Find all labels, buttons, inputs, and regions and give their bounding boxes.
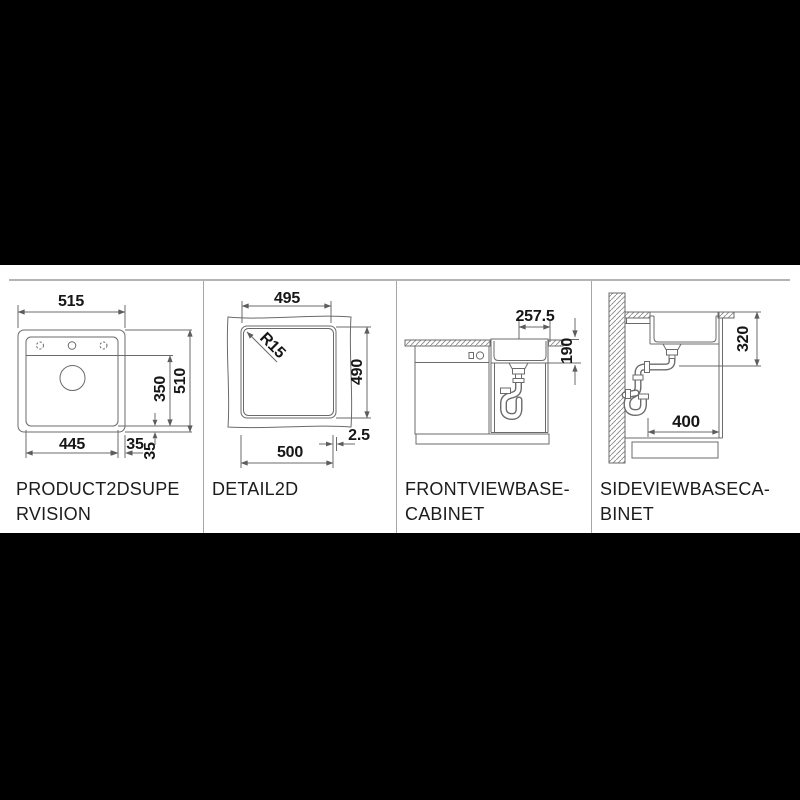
panel-frontviewbasecabinet: 257.5 190 FRONTVIEWBASE- CABINET <box>396 265 591 533</box>
panel-label-line1: PRODUCT2DSUPE <box>16 477 180 502</box>
panel-sideviewbasecabinet: 320 400 SIDEVIEWBASECA- BINET <box>591 265 800 533</box>
panel-label: SIDEVIEWBASECA- BINET <box>600 477 770 527</box>
dim-installation-depth: 320 <box>735 326 753 352</box>
panel-label-line2: RVISION <box>16 502 180 527</box>
front-view-cabinet-drawing <box>396 285 591 480</box>
panel-detail2d: 495 R15 490 2.5 500 DETAIL2D <box>203 265 396 533</box>
dim-inner-height: 490 <box>349 359 367 385</box>
panel-label: DETAIL2D <box>212 477 298 502</box>
panel-label-line1: SIDEVIEWBASECA- <box>600 477 770 502</box>
panel-label-line2: BINET <box>600 502 770 527</box>
panel-label: FRONTVIEWBASE- CABINET <box>405 477 570 527</box>
dim-bowl-depth-front: 350 <box>152 376 170 402</box>
dim-offset-bottom: 35 <box>142 442 160 459</box>
side-view-cabinet-drawing <box>591 285 800 480</box>
dim-bowl-depth: 190 <box>559 338 577 364</box>
panel-label-line2: CABINET <box>405 502 570 527</box>
dim-overall-width: 515 <box>58 293 84 311</box>
panel-label: PRODUCT2DSUPE RVISION <box>16 477 180 527</box>
dim-drain-offset: 257.5 <box>515 308 554 326</box>
dim-overall-depth: 510 <box>172 368 190 394</box>
dim-clearance: 400 <box>672 412 700 432</box>
panel-product2dsupervision: 515 350 510 445 35 35 PRODUCT2DSUPE RVIS… <box>0 265 203 533</box>
drawing-sheet: 515 350 510 445 35 35 PRODUCT2DSUPE RVIS… <box>0 265 800 533</box>
spec-sheet-page: { "sheet": { "page_background": "#000000… <box>0 0 800 800</box>
dim-cutout-bottom-width: 445 <box>59 436 85 454</box>
dim-edge-gap: 2.5 <box>348 427 370 445</box>
panel-label-line1: DETAIL2D <box>212 477 298 502</box>
dim-cutout-width: 500 <box>277 444 303 462</box>
dim-inner-width: 495 <box>274 290 300 308</box>
panel-label-line1: FRONTVIEWBASE- <box>405 477 570 502</box>
